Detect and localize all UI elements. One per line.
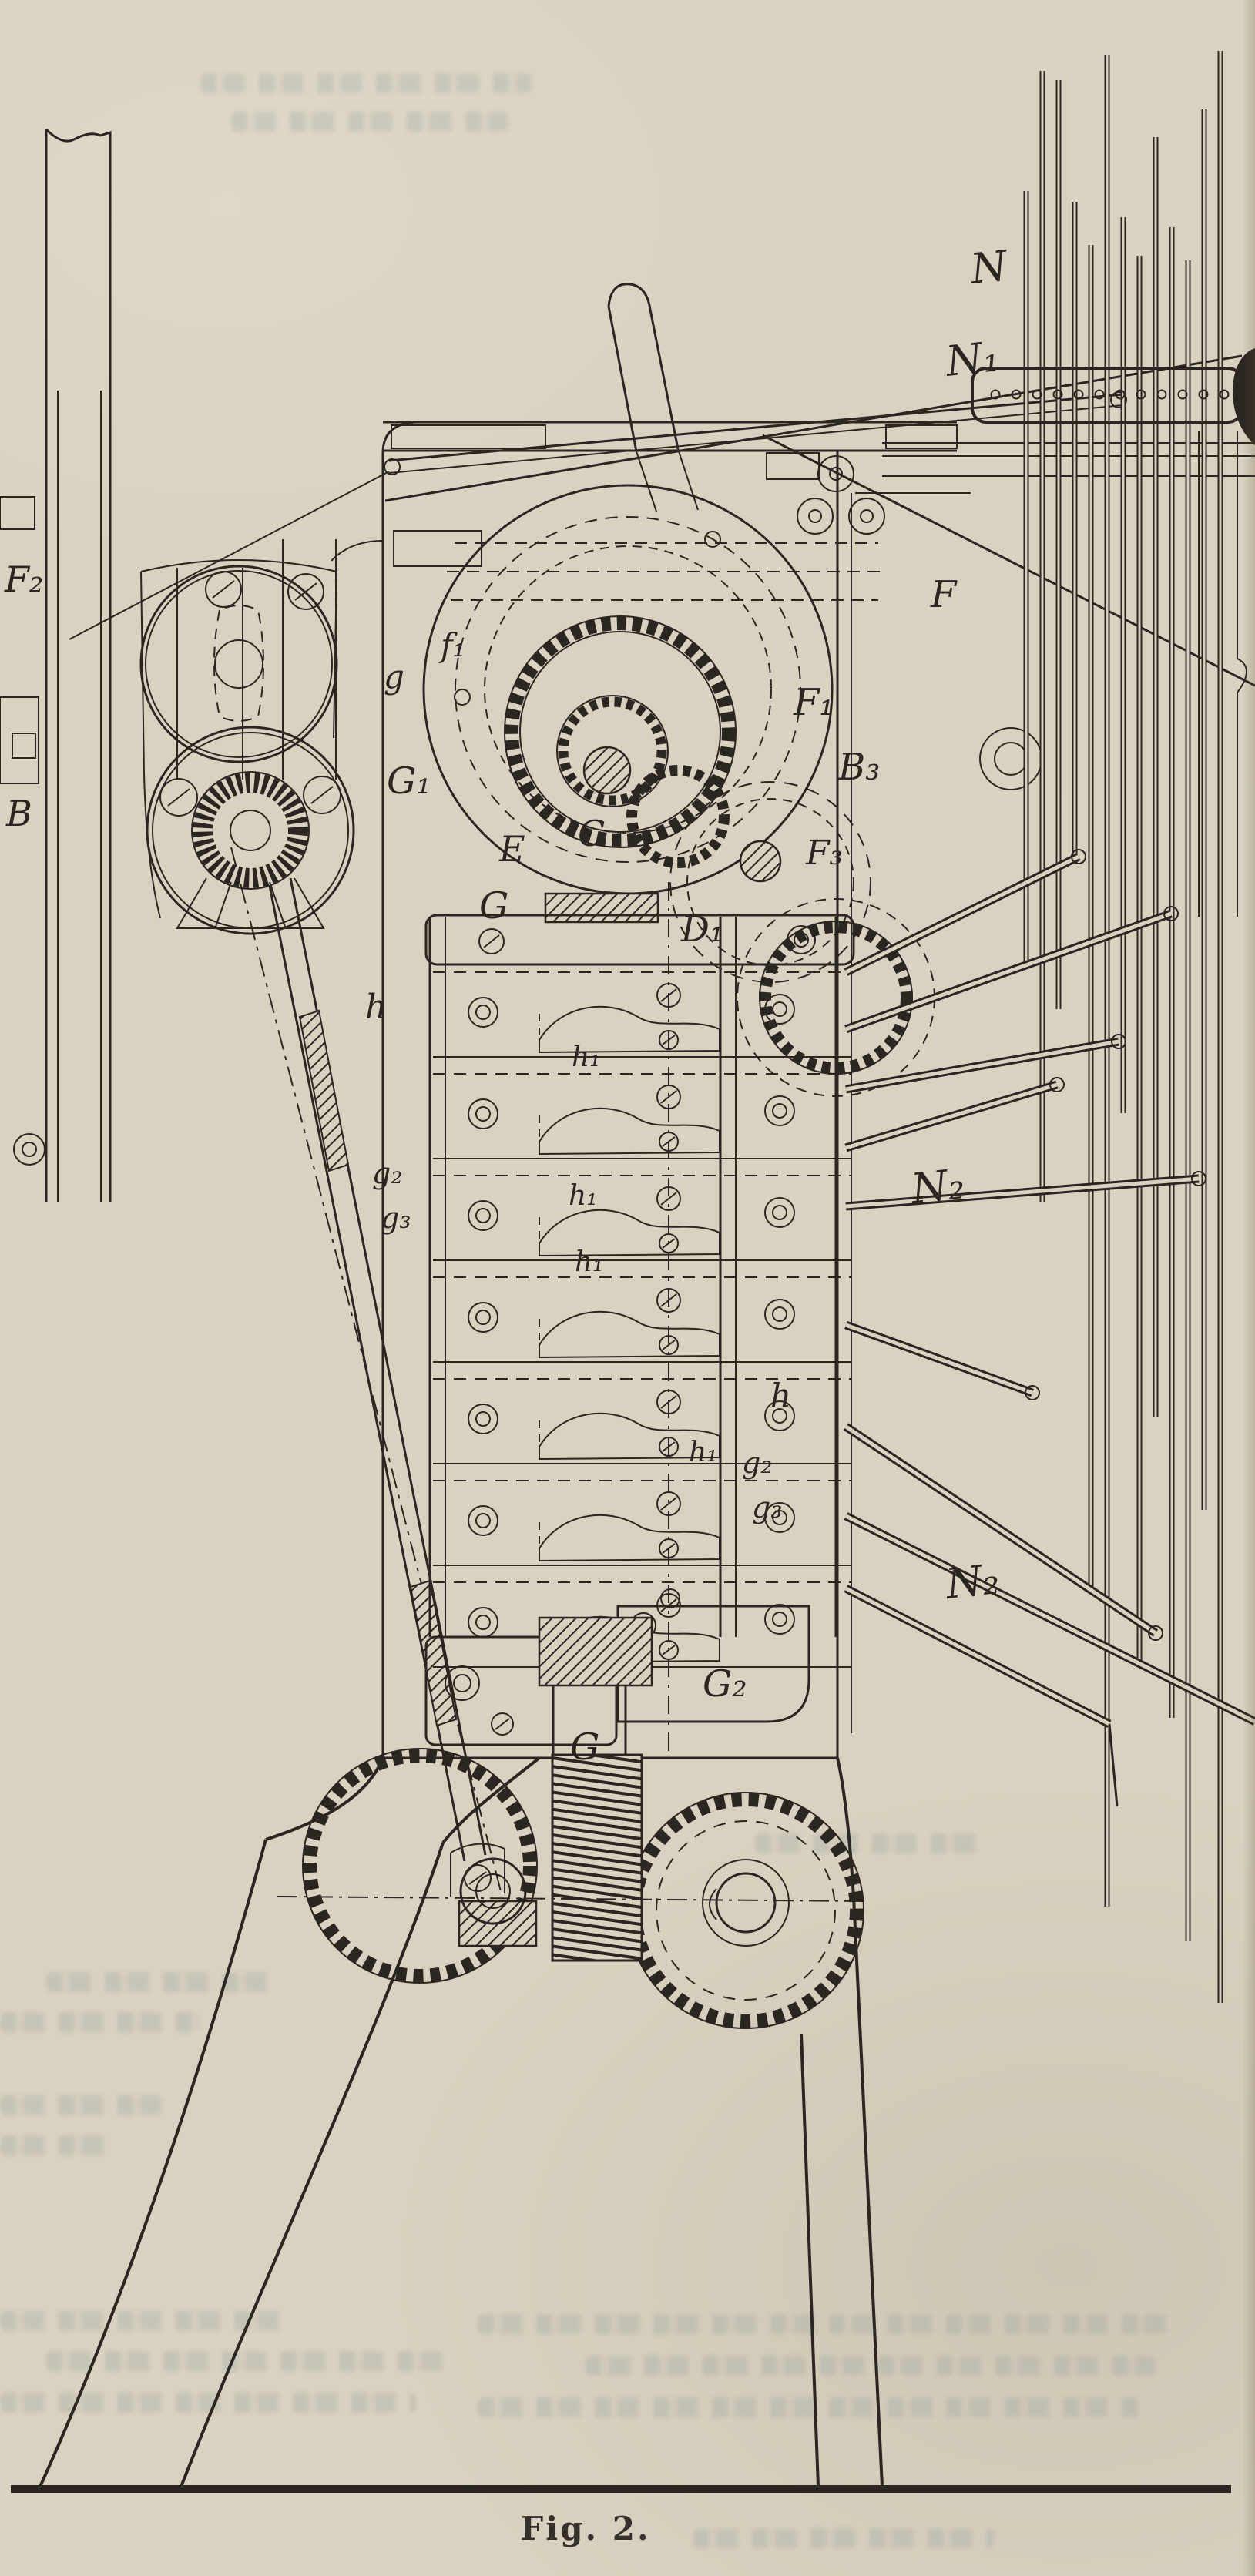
label-N2b: N₂ bbox=[942, 1555, 1002, 1608]
label-E: E bbox=[498, 828, 525, 870]
label-h-b: h bbox=[770, 1377, 791, 1414]
label-g3-b: g₃ bbox=[752, 1491, 783, 1524]
label-B-margin: B bbox=[5, 793, 32, 834]
cylinder-drum-gears bbox=[424, 485, 935, 1096]
label-G-b: G bbox=[570, 1726, 599, 1769]
label-F: F bbox=[930, 573, 958, 616]
left-margin-partial-figure bbox=[0, 129, 389, 1202]
label-F1: F₁ bbox=[793, 681, 834, 724]
label-g2-a: g₂ bbox=[372, 1156, 403, 1190]
machine-stand-legs bbox=[40, 1758, 882, 2487]
scanned-page: N N₁ N₂ N₂ F₂ B f₁ g G₁ E C G D₁ F₁ B₃ F… bbox=[0, 0, 1255, 2576]
label-D1: D₁ bbox=[680, 908, 723, 950]
label-B3: B₃ bbox=[837, 746, 881, 789]
label-h1-a: h₁ bbox=[572, 1041, 601, 1073]
label-h1-c: h₁ bbox=[575, 1246, 604, 1278]
fig2-technical-drawing: N N₁ N₂ N₂ F₂ B f₁ g G₁ E C G D₁ F₁ B₃ F… bbox=[0, 0, 1255, 2576]
label-F3: F₃ bbox=[805, 834, 843, 873]
label-h: h bbox=[365, 988, 387, 1027]
label-N1: N₁ bbox=[942, 332, 1002, 386]
label-F2-margin: F₂ bbox=[4, 558, 43, 600]
label-G1: G₁ bbox=[387, 760, 431, 803]
label-N2: N₂ bbox=[908, 1159, 967, 1213]
band-pulleys bbox=[141, 560, 354, 934]
figure-caption: Fig. 2. bbox=[478, 2510, 693, 2547]
label-h1-b: h₁ bbox=[569, 1180, 598, 1212]
label-g3-a: g₃ bbox=[381, 1201, 411, 1235]
label-G: G bbox=[479, 884, 508, 927]
bottom-gear-drive bbox=[277, 1749, 871, 2028]
label-g2-b: g₂ bbox=[742, 1446, 773, 1480]
label-N: N bbox=[967, 241, 1011, 293]
label-g: g bbox=[384, 658, 404, 696]
label-G2: G₂ bbox=[703, 1662, 747, 1706]
label-h1-d: h₁ bbox=[689, 1437, 718, 1468]
label-C: C bbox=[578, 813, 605, 854]
part-labels: N N₁ N₂ N₂ F₂ B f₁ g G₁ E C G D₁ F₁ B₃ F… bbox=[4, 241, 1011, 1769]
label-f1: f₁ bbox=[438, 626, 465, 664]
selector-stack bbox=[426, 882, 854, 1860]
needle-wires bbox=[972, 51, 1242, 2003]
